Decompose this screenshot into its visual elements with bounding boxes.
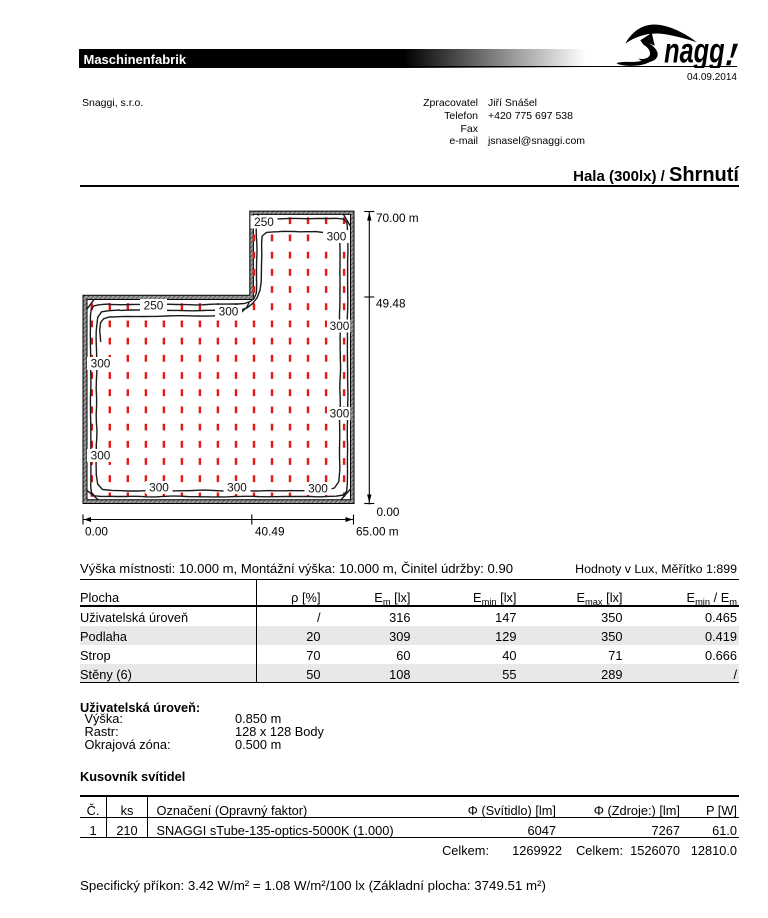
svg-text:300: 300 (327, 230, 347, 244)
svg-text:0.00: 0.00 (85, 525, 108, 539)
svg-text:65.00 m: 65.00 m (356, 525, 399, 539)
svg-text:300: 300 (330, 319, 350, 333)
svg-text:300: 300 (91, 357, 111, 371)
svg-text:300: 300 (219, 305, 239, 319)
svg-text:nagg: nagg (664, 31, 725, 68)
svg-text:49.48: 49.48 (376, 297, 406, 311)
svg-text:300: 300 (308, 482, 328, 496)
svg-text:300: 300 (227, 481, 247, 495)
svg-text:250: 250 (254, 215, 274, 229)
svg-text:300: 300 (91, 449, 111, 463)
svg-text:250: 250 (144, 299, 164, 313)
svg-text:0.00: 0.00 (377, 505, 400, 519)
svg-text:300: 300 (330, 407, 350, 421)
svg-text:300: 300 (149, 481, 169, 495)
svg-text:70.00 m: 70.00 m (376, 211, 419, 225)
svg-text:40.49: 40.49 (255, 525, 285, 539)
